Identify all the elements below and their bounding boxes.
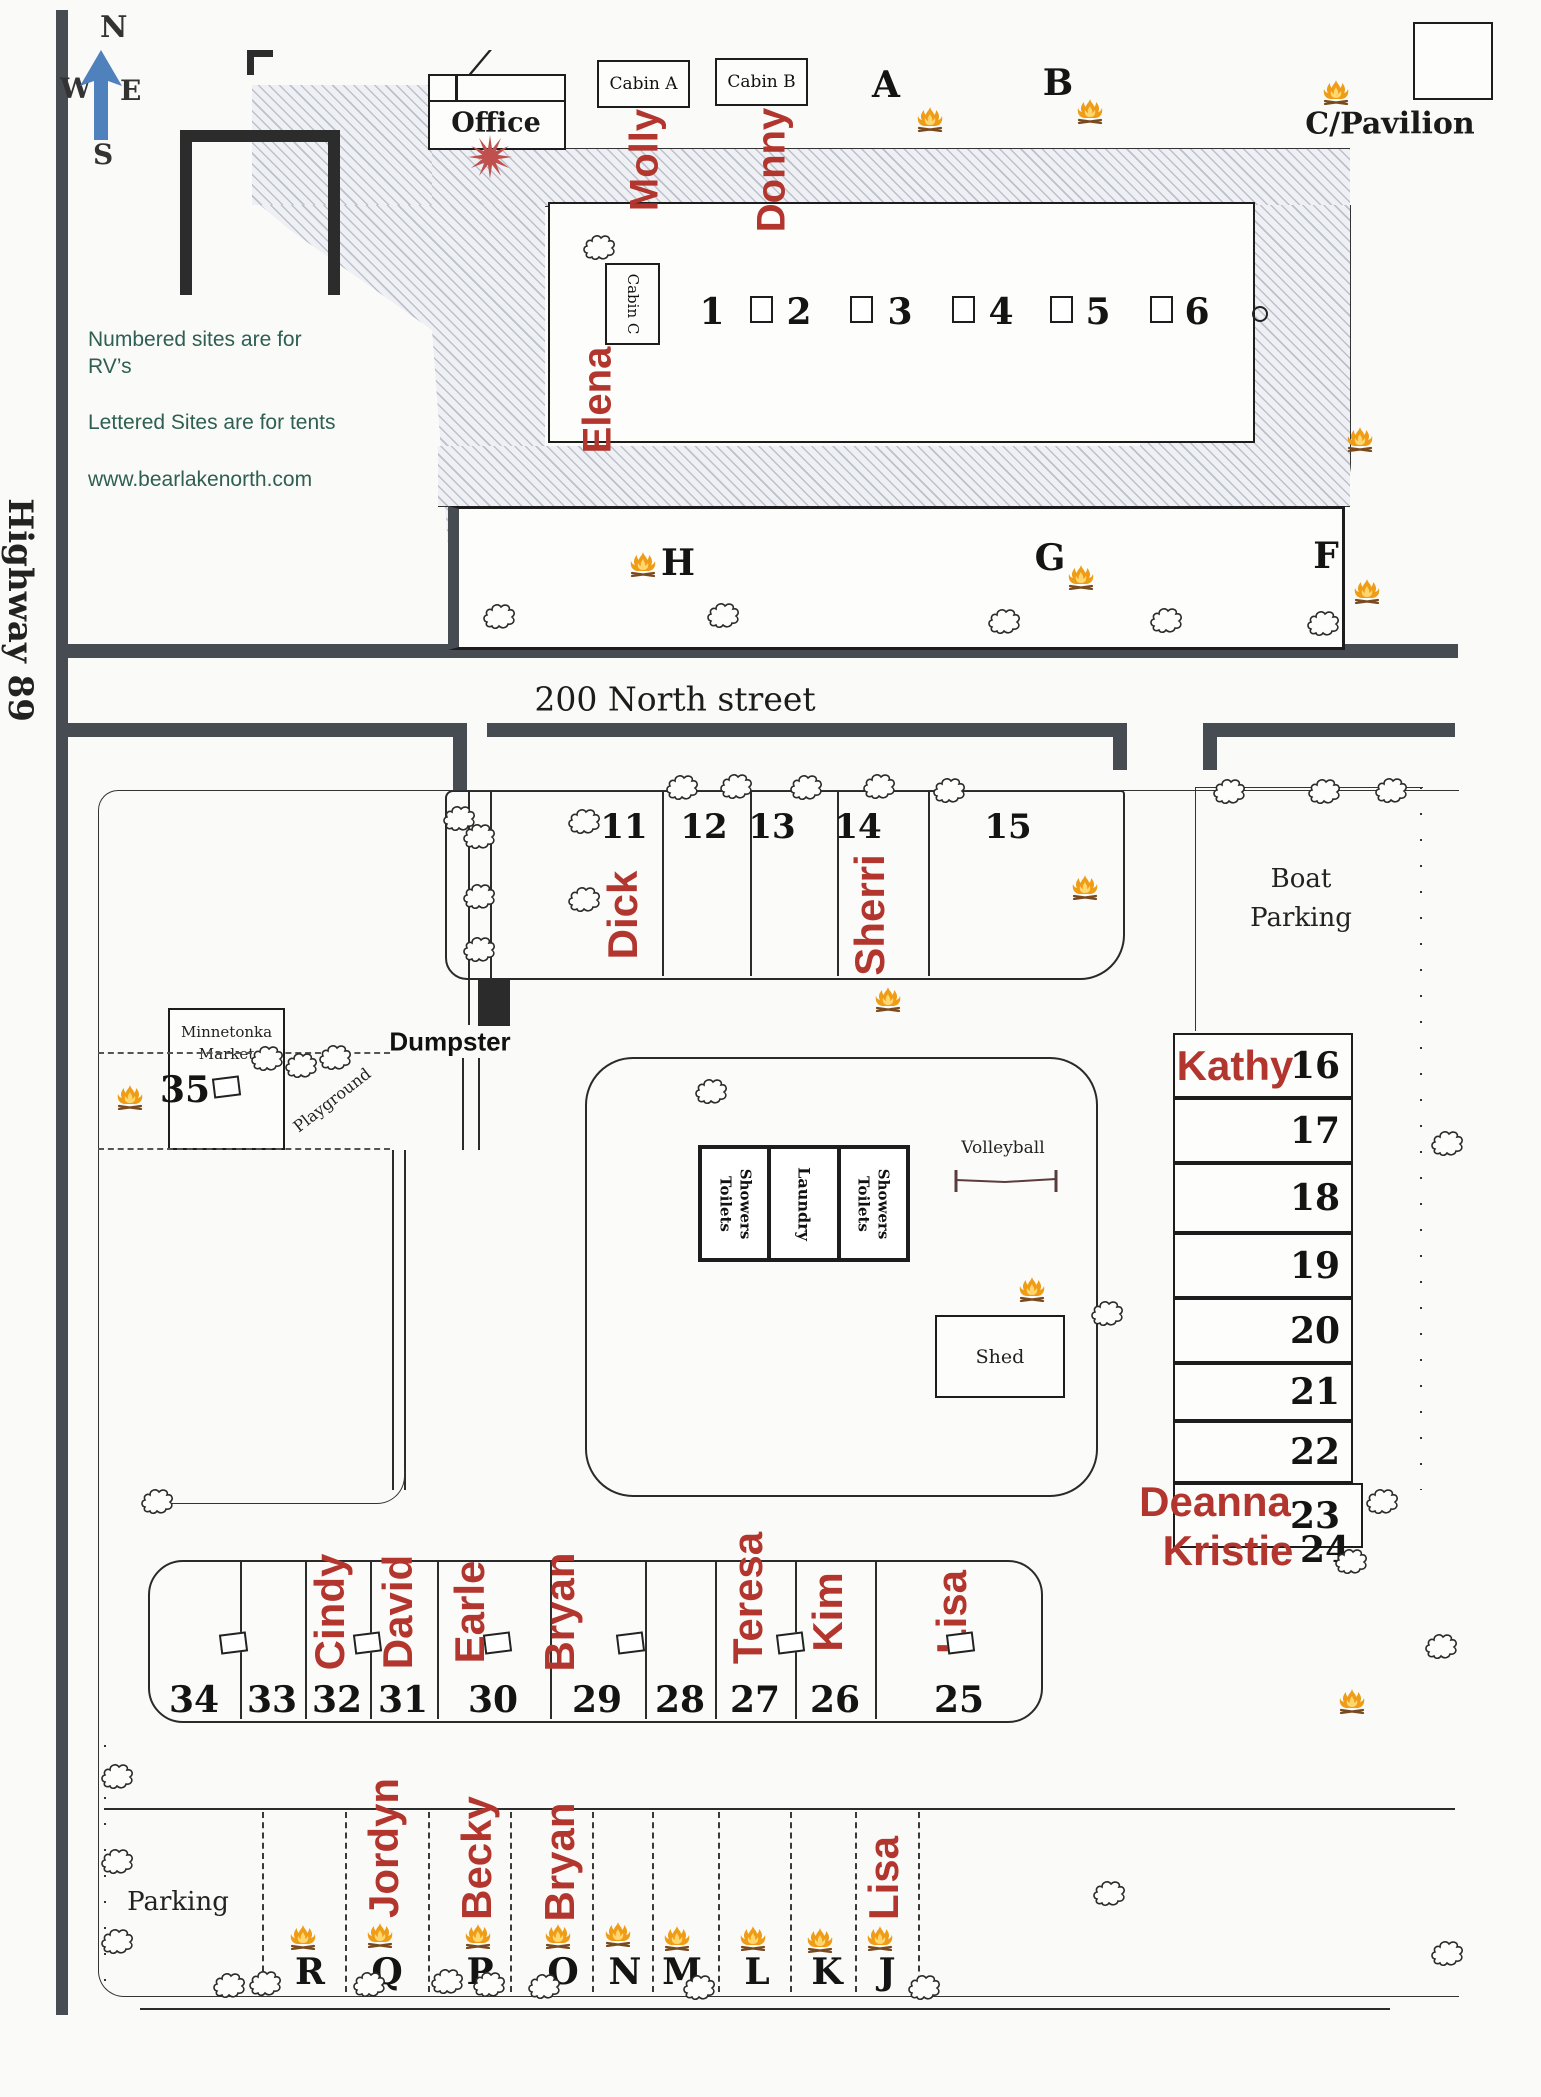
tent-divider-6 — [718, 1812, 720, 1992]
tree-icon — [1431, 1127, 1465, 1157]
rv-site-21: 21 — [1290, 1371, 1340, 1413]
compass-arrow-icon — [80, 50, 122, 142]
office-roof-divider — [455, 74, 458, 100]
rv-pad-5 — [1050, 296, 1073, 323]
campfire-icon — [366, 1922, 394, 1948]
tree-icon — [101, 1925, 135, 1960]
wall-left-leg — [180, 130, 192, 295]
campfire-icon — [544, 1923, 572, 1949]
tree-icon — [1091, 1297, 1125, 1332]
tent-divider-0 — [262, 1812, 264, 1992]
tree-icon — [1431, 1937, 1465, 1972]
tree-icon — [473, 1968, 507, 2003]
tree-icon — [1307, 607, 1341, 637]
campfire-icon — [806, 1927, 834, 1953]
campfire-icon — [874, 986, 902, 1017]
tree-icon — [1308, 775, 1342, 805]
campfire-icon — [604, 1921, 632, 1952]
cabin-c-label: Cabin C — [624, 274, 642, 335]
campfire-icon — [116, 1084, 144, 1115]
yard-fence-h — [160, 1470, 405, 1504]
tree-icon — [1150, 604, 1184, 639]
tree-icon — [1335, 1545, 1369, 1580]
tent-site-f: F — [1313, 535, 1339, 577]
tent-site-h: H — [661, 542, 695, 584]
tree-icon — [285, 1049, 319, 1079]
legend-line-2: Lettered Sites are for tents — [88, 409, 338, 436]
tree-icon — [666, 771, 700, 806]
legend-line-1: Numbered sites are for RV’s — [88, 326, 338, 381]
tree-icon — [933, 774, 967, 809]
tree-icon — [213, 1969, 247, 2004]
drive-office-area — [252, 85, 432, 205]
campfire-icon — [1067, 564, 1095, 590]
rv-site-13: 13 — [748, 807, 795, 847]
wall-right-leg — [328, 130, 340, 295]
rv-site-33: 33 — [247, 1679, 297, 1721]
tree-icon — [583, 231, 617, 261]
rv-site-12: 12 — [680, 807, 727, 847]
utility-post-1 — [353, 1631, 382, 1654]
guest-name-becky: Becky — [453, 1796, 501, 1920]
guest-name-kathy: Kathy — [1177, 1042, 1294, 1090]
dumpster-icon — [478, 980, 510, 1026]
row25-divider-6 — [715, 1562, 717, 1719]
campfire-icon — [663, 1925, 691, 1951]
showers-building: ShowersToilets Laundry ShowersToilets — [698, 1145, 910, 1262]
utility-post-2 — [483, 1631, 512, 1654]
tree-icon — [695, 1075, 729, 1110]
guest-name-bryan: Bryan — [536, 1552, 584, 1671]
tree-icon — [353, 1968, 387, 1998]
tree-icon — [1093, 1877, 1127, 1907]
highway-89-road — [56, 10, 68, 2015]
tree-icon — [213, 1969, 247, 1999]
campfire-icon — [629, 551, 657, 577]
tree-icon — [1150, 604, 1184, 634]
campfire-icon — [1353, 578, 1381, 609]
tree-icon — [1213, 775, 1247, 810]
strip-divider-0 — [662, 790, 664, 976]
guest-name-lisa: Lisa — [860, 1836, 908, 1920]
row25-divider-8 — [875, 1562, 877, 1719]
tree-icon — [933, 774, 967, 804]
showers-east-label: ShowersToilets — [853, 1168, 894, 1239]
tree-icon — [1308, 775, 1342, 810]
tree-icon — [431, 1965, 465, 1995]
tree-icon — [863, 770, 897, 800]
legend-website: www.bearlakenorth.com — [88, 466, 338, 493]
rv-site-19: 19 — [1290, 1245, 1340, 1287]
campfire-icon — [366, 1922, 394, 1953]
tree-icon — [568, 883, 602, 913]
tree-icon — [1431, 1937, 1465, 1967]
tree-icon — [1425, 1630, 1459, 1660]
campfire-icon — [739, 1925, 767, 1951]
guest-name-molly: Molly — [623, 109, 668, 211]
campfire-icon — [1018, 1276, 1046, 1307]
rv-site-4: 4 — [988, 291, 1013, 333]
cabin-c: Cabin C — [605, 263, 660, 345]
drive-top-band — [432, 148, 1350, 207]
row25-divider-3 — [437, 1562, 439, 1719]
campfire-icon — [806, 1927, 834, 1958]
guest-name-dick: Dick — [599, 871, 647, 960]
utility-post-3 — [616, 1631, 645, 1654]
rv-site-5: 5 — [1085, 291, 1110, 333]
guest-name-cindy: Cindy — [306, 1554, 354, 1671]
highway-89-label: Highway 89 — [0, 498, 40, 722]
tree-icon — [1375, 774, 1409, 809]
street-entrance-stub-1 — [453, 723, 467, 795]
tree-icon — [483, 600, 517, 630]
tent-site-g: G — [1035, 537, 1066, 579]
bottom-outer-line — [140, 2008, 1390, 2010]
showers-west-wing: ShowersToilets — [702, 1149, 771, 1258]
tree-icon — [1431, 1127, 1465, 1162]
campground-map: Highway 89 200 North street N W E S Numb… — [0, 0, 1541, 2097]
tree-icon — [463, 933, 497, 963]
rv-site-14: 14 — [834, 807, 881, 847]
showers-east-wing: ShowersToilets — [841, 1149, 906, 1258]
rv-site-25: 25 — [934, 1679, 984, 1721]
tent-divider-8 — [855, 1812, 857, 1992]
compass-e: E — [120, 74, 141, 107]
tree-icon — [1375, 774, 1409, 804]
cabin-a-label: Cabin A — [609, 74, 677, 94]
guest-name-donny: Donny — [750, 108, 795, 232]
cabin-b: Cabin B — [715, 58, 808, 106]
office-bracket-v — [247, 50, 254, 75]
campfire-icon — [1076, 98, 1104, 129]
rv-pad-6 — [1150, 296, 1173, 323]
showers-west-label: ShowersToilets — [714, 1168, 755, 1239]
tree-icon — [101, 1925, 135, 1955]
guest-name-bryan: Bryan — [536, 1802, 584, 1921]
office-starburst-icon — [468, 135, 512, 179]
rv-site-22: 22 — [1290, 1431, 1340, 1473]
campfire-icon — [544, 1923, 572, 1954]
campfire-icon — [1322, 79, 1350, 110]
campfire-icon — [663, 1925, 691, 1956]
tree-icon — [1091, 1297, 1125, 1327]
compass-s: S — [93, 138, 113, 171]
yard-fence-v2 — [404, 1150, 406, 1490]
tent-site-b: B — [1043, 62, 1073, 104]
rv-site-26: 26 — [810, 1679, 860, 1721]
parking-label: Parking — [127, 1887, 229, 1917]
rv-hookup-circle — [1252, 306, 1268, 322]
tree-icon — [790, 771, 824, 801]
guest-name-jordyn: Jordyn — [360, 1778, 408, 1918]
campfire-icon — [1346, 426, 1374, 452]
rv-site-3: 3 — [887, 291, 912, 333]
compass: N W E S — [58, 10, 188, 180]
tree-icon — [583, 231, 617, 266]
tree-icon — [568, 883, 602, 918]
street-south-edge-mid — [487, 723, 1127, 737]
tree-icon — [463, 933, 497, 968]
tree-icon — [666, 771, 700, 801]
tree-icon — [1366, 1485, 1400, 1515]
volleyball-net-icon — [950, 1168, 1062, 1194]
tree-icon — [988, 605, 1022, 635]
tree-icon — [568, 805, 602, 835]
rv-site-17: 17 — [1290, 1110, 1340, 1152]
street-entrance-stub-2 — [1113, 723, 1127, 770]
tree-icon — [483, 600, 517, 635]
campfire-icon — [464, 1923, 492, 1949]
campfire-icon — [1338, 1688, 1366, 1719]
tree-icon — [141, 1485, 175, 1515]
tree-icon — [720, 770, 754, 805]
tree-icon — [473, 1968, 507, 1998]
tree-icon — [101, 1760, 135, 1795]
tree-icon — [908, 1971, 942, 2001]
tree-icon — [463, 820, 497, 850]
campfire-icon — [1346, 426, 1374, 457]
tree-icon — [908, 1971, 942, 2006]
laundry-wing: Laundry — [771, 1149, 840, 1258]
guest-name-teresa: Teresa — [724, 1532, 772, 1664]
street-label: 200 North street — [534, 680, 815, 719]
market-fence-line-3 — [462, 1058, 464, 1150]
tent-site-n: N — [609, 1951, 642, 1993]
rv-site-29: 29 — [572, 1679, 622, 1721]
campfire-icon — [739, 1925, 767, 1956]
campfire-icon — [464, 1923, 492, 1954]
rv-site-11: 11 — [600, 807, 647, 847]
campfire-icon — [604, 1921, 632, 1947]
tent-site-a: A — [872, 64, 900, 106]
campfire-icon — [1076, 98, 1104, 124]
dumpster-label: Dumpster — [389, 1027, 510, 1058]
guest-name-david: David — [374, 1555, 422, 1669]
playground-strip-bottom — [98, 1148, 390, 1150]
shed-building: Shed — [935, 1315, 1065, 1398]
tent-divider-9 — [918, 1812, 920, 1992]
site-35-number: 35 — [160, 1069, 210, 1111]
tree-icon — [683, 1971, 717, 2006]
street-south-edge-east — [1203, 723, 1455, 737]
tree-icon — [251, 1042, 285, 1077]
tree-icon — [319, 1041, 353, 1076]
tent-site-j: J — [878, 1951, 895, 1993]
campfire-icon — [289, 1924, 317, 1955]
rv-pad-2 — [750, 296, 773, 323]
tent-site-r: R — [295, 1951, 325, 1993]
tree-icon — [528, 1970, 562, 2000]
parking-fence-top — [104, 1808, 1455, 1810]
office-label: Office — [451, 108, 541, 139]
tree-icon — [101, 1760, 135, 1790]
tree-icon — [251, 1042, 285, 1072]
tree-icon — [101, 1845, 135, 1880]
tent-site-l: L — [744, 1951, 769, 1993]
rv-site-2: 2 — [786, 291, 811, 333]
rv-site-31: 31 — [378, 1679, 428, 1721]
rv-site-28: 28 — [655, 1679, 705, 1721]
rv-site-16: 16 — [1290, 1045, 1340, 1087]
cabin-b-label: Cabin B — [727, 72, 795, 92]
tree-icon — [353, 1968, 387, 2003]
guest-name-elena: Elena — [576, 347, 621, 454]
rv-site-20: 20 — [1290, 1310, 1340, 1352]
tree-icon — [528, 1970, 562, 2005]
campfire-icon — [289, 1924, 317, 1950]
market-fence-line-4 — [478, 1058, 480, 1150]
tent-divider-1 — [345, 1812, 347, 1992]
tree-icon — [319, 1041, 353, 1071]
rv-site-15: 15 — [984, 807, 1031, 847]
tree-icon — [863, 770, 897, 805]
utility-post-0 — [219, 1631, 248, 1654]
campfire-icon — [1353, 578, 1381, 604]
site-35-post — [212, 1075, 241, 1098]
tree-icon — [1093, 1877, 1127, 1912]
rv-site-30: 30 — [468, 1679, 518, 1721]
campfire-icon — [116, 1084, 144, 1110]
pavilion-square — [1413, 22, 1493, 100]
guest-name-kristie: Kristie — [1163, 1527, 1294, 1575]
yard-fence-v1 — [392, 1150, 394, 1490]
campfire-icon — [916, 106, 944, 132]
guest-name-deanna: Deanna — [1139, 1478, 1291, 1526]
tree-icon — [249, 1967, 283, 2002]
office-roof-band — [428, 74, 566, 102]
market-label-1: Minnetonka — [181, 1023, 272, 1041]
tree-icon — [1307, 607, 1341, 642]
tree-icon — [431, 1965, 465, 2000]
rv-site-18: 18 — [1290, 1177, 1340, 1219]
tree-icon — [141, 1485, 175, 1520]
tree-icon — [695, 1075, 729, 1105]
campfire-icon — [866, 1925, 894, 1951]
rv-site-27: 27 — [730, 1679, 780, 1721]
tree-icon — [1213, 775, 1247, 805]
rv-site-34: 34 — [169, 1679, 219, 1721]
campfire-icon — [1322, 79, 1350, 105]
laundry-label: Laundry — [794, 1167, 813, 1241]
rv-site-32: 32 — [312, 1679, 362, 1721]
tree-icon — [720, 770, 754, 800]
campfire-icon — [629, 551, 657, 582]
rv-pad-4 — [952, 296, 975, 323]
rv-site-1: 1 — [699, 291, 724, 333]
utility-post-5 — [946, 1631, 975, 1654]
tent-box-hgf — [448, 506, 1345, 650]
row25-divider-5 — [645, 1562, 647, 1719]
tree-icon — [790, 771, 824, 806]
campfire-icon — [866, 1925, 894, 1956]
tree-icon — [568, 805, 602, 840]
tree-icon — [1366, 1485, 1400, 1520]
campfire-icon — [916, 106, 944, 137]
tree-icon — [101, 1845, 135, 1875]
rv-site-6: 6 — [1184, 291, 1209, 333]
strip-divider-3 — [928, 790, 930, 976]
utility-post-4 — [776, 1631, 805, 1654]
tent-divider-2 — [428, 1812, 430, 1992]
tree-icon — [285, 1049, 319, 1084]
shed-label: Shed — [976, 1346, 1025, 1368]
street-south-edge-west — [68, 723, 467, 737]
tree-icon — [1425, 1630, 1459, 1665]
rv-pad-3 — [850, 296, 873, 323]
tree-icon — [707, 599, 741, 629]
tree-icon — [463, 880, 497, 910]
campfire-icon — [1338, 1688, 1366, 1714]
campfire-icon — [1071, 874, 1099, 900]
volleyball-label: Volleyball — [961, 1138, 1044, 1158]
pavilion-label: C/Pavilion — [1305, 107, 1474, 142]
street-entrance-stub-3 — [1203, 723, 1217, 770]
guest-name-kim: Kim — [804, 1572, 852, 1651]
campfire-icon — [1067, 564, 1095, 595]
wall-top — [180, 130, 340, 142]
campfire-icon — [1071, 874, 1099, 905]
tent-divider-5 — [652, 1812, 654, 1992]
tree-icon — [988, 605, 1022, 640]
tent-divider-4 — [592, 1812, 594, 1992]
legend: Numbered sites are for RV’s Lettered Sit… — [88, 326, 338, 493]
compass-n: N — [100, 10, 127, 45]
market-label-2: Market — [199, 1045, 254, 1063]
tree-icon — [1335, 1545, 1369, 1575]
cabin-a: Cabin A — [597, 60, 690, 108]
guest-name-sherri: Sherri — [846, 854, 894, 975]
tree-icon — [707, 599, 741, 634]
tree-icon — [249, 1967, 283, 1997]
drive-mid-strip — [438, 446, 1350, 507]
tree-icon — [683, 1971, 717, 2001]
tree-icon — [463, 820, 497, 855]
tree-icon — [463, 880, 497, 915]
office-chimney — [467, 50, 522, 76]
tent-divider-7 — [790, 1812, 792, 1992]
tent-divider-3 — [510, 1812, 512, 1992]
campfire-icon — [1018, 1276, 1046, 1302]
campfire-icon — [874, 986, 902, 1012]
